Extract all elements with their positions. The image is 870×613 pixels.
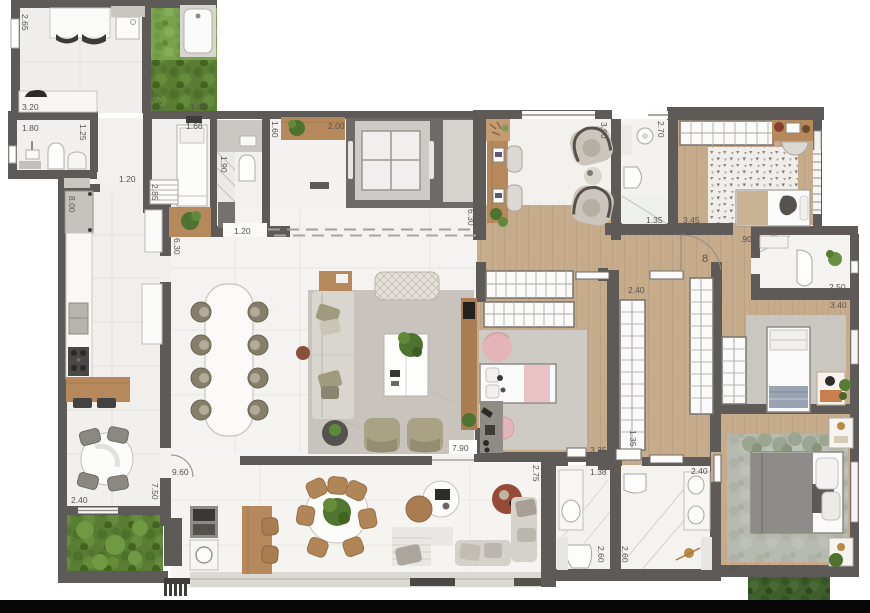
svg-text:2.40: 2.40 — [628, 285, 645, 295]
svg-text:2.40: 2.40 — [691, 466, 708, 476]
svg-text:1.38: 1.38 — [590, 467, 607, 477]
svg-text:7.50: 7.50 — [150, 483, 160, 500]
svg-text:1.66: 1.66 — [186, 121, 203, 131]
svg-text:3.40: 3.40 — [830, 300, 847, 310]
svg-text:1.60: 1.60 — [270, 121, 280, 138]
svg-text:2.60: 2.60 — [596, 546, 606, 563]
svg-text:3.45: 3.45 — [683, 215, 700, 225]
svg-text:1.25: 1.25 — [78, 124, 88, 141]
svg-text:.90: .90 — [740, 234, 752, 244]
svg-text:7.90: 7.90 — [452, 443, 469, 453]
svg-text:2.75: 2.75 — [531, 465, 541, 482]
svg-text:2.65: 2.65 — [20, 14, 30, 31]
svg-text:1.45: 1.45 — [190, 102, 207, 112]
svg-text:1.90: 1.90 — [219, 156, 229, 173]
svg-text:2.40: 2.40 — [154, 93, 164, 110]
svg-text:1.20: 1.20 — [234, 226, 251, 236]
svg-text:3.90: 3.90 — [599, 122, 609, 139]
svg-text:6.30: 6.30 — [466, 209, 476, 226]
svg-text:2.85: 2.85 — [150, 184, 160, 201]
svg-text:3.20: 3.20 — [22, 102, 39, 112]
svg-text:1.80: 1.80 — [22, 123, 39, 133]
svg-text:3.35: 3.35 — [590, 445, 607, 455]
svg-text:1.20: 1.20 — [119, 174, 136, 184]
svg-text:1.35: 1.35 — [628, 430, 638, 447]
svg-text:2.00: 2.00 — [328, 121, 345, 131]
svg-text:2.50: 2.50 — [829, 282, 846, 292]
svg-text:2.40: 2.40 — [71, 495, 88, 505]
svg-text:6.30: 6.30 — [172, 238, 182, 255]
svg-text:8: 8 — [702, 253, 708, 265]
svg-text:1.35: 1.35 — [646, 215, 663, 225]
svg-text:8.00: 8.00 — [67, 196, 77, 213]
svg-text:3.40: 3.40 — [722, 563, 739, 573]
svg-text:9.60: 9.60 — [172, 467, 189, 477]
svg-text:2.60: 2.60 — [620, 546, 630, 563]
svg-text:2.70: 2.70 — [656, 121, 666, 138]
